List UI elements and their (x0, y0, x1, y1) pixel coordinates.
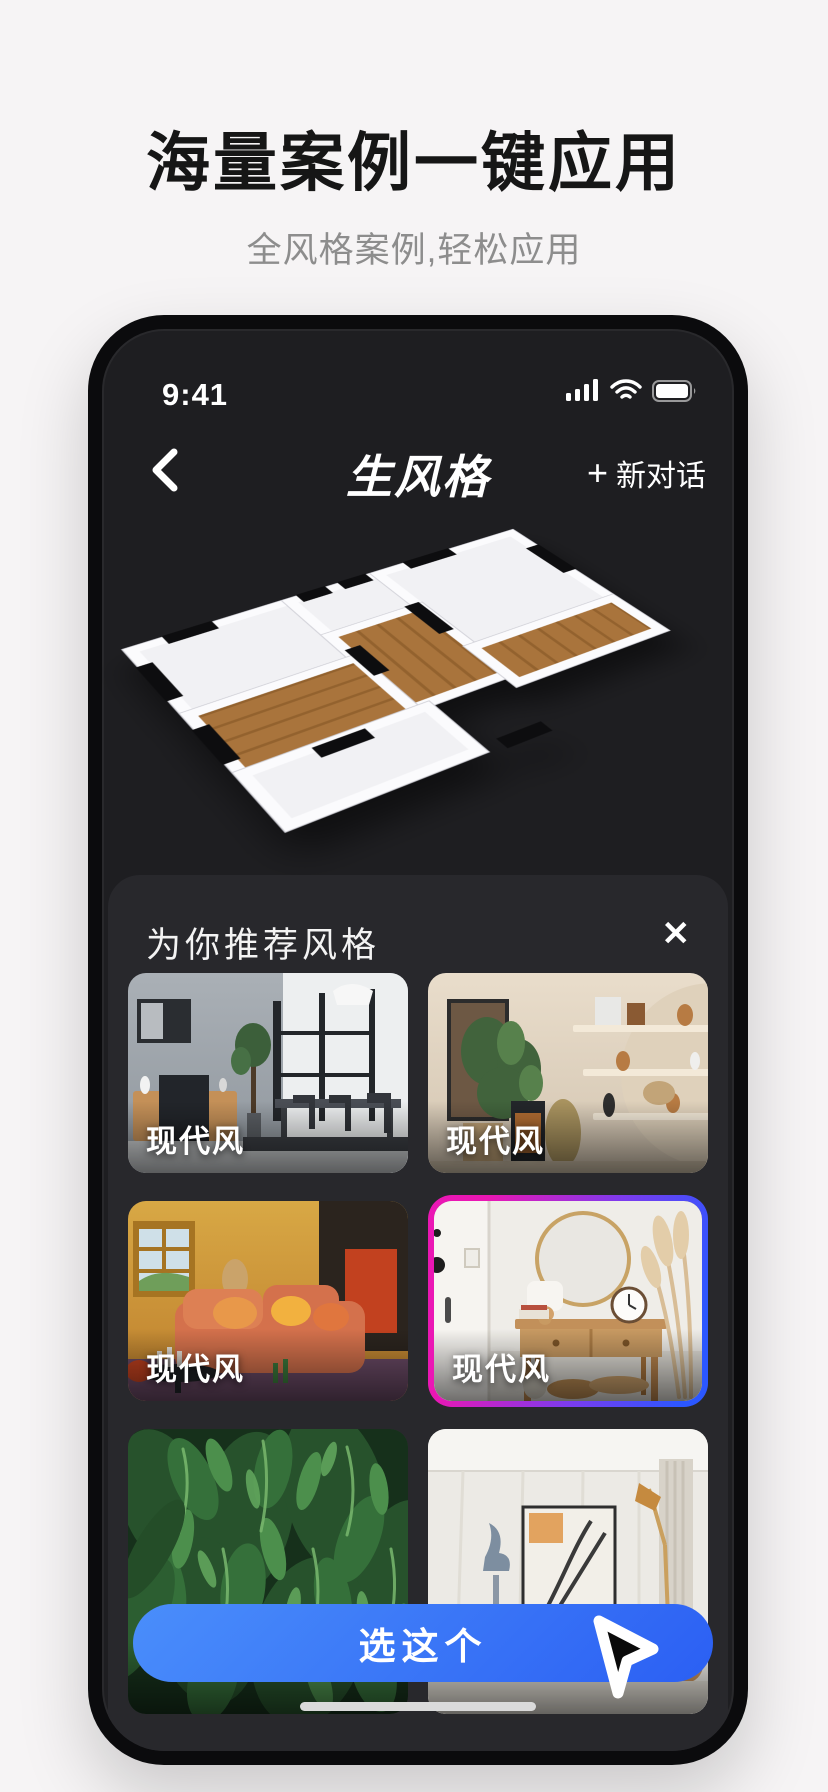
page-subtitle: 全风格案例,轻松应用 (0, 222, 828, 273)
style-card-dining-gray[interactable]: 现代风 (128, 973, 408, 1173)
sheet-title: 为你推荐风格 (146, 926, 380, 965)
signal-icon (566, 379, 600, 403)
floorplan-model (123, 529, 718, 831)
new-chat-label: 新对话 (616, 451, 706, 495)
style-card-selected[interactable]: 现代风 (428, 1195, 708, 1407)
plus-icon: + (587, 458, 608, 488)
style-grid: 现代风 (128, 973, 708, 1714)
style-card-shelves-beige[interactable]: 现代风 (428, 973, 708, 1173)
choose-button[interactable]: 选这个 (133, 1604, 713, 1682)
floorplan-3d (102, 497, 734, 857)
close-icon: ✕ (662, 915, 691, 953)
close-button[interactable]: ✕ (658, 913, 695, 955)
battery-icon (652, 379, 698, 403)
card-label: 现代风 (452, 1344, 551, 1389)
card-label: 现代风 (446, 1116, 545, 1161)
choose-button-label: 选这个 (359, 1626, 488, 1667)
sheet-header: 为你推荐风格 ✕ (128, 875, 708, 971)
phone-mockup: 9:41 (88, 315, 748, 1765)
phone-screen: 9:41 (102, 329, 734, 1751)
status-time: 9:41 (162, 377, 228, 413)
card-label: 现代风 (146, 1344, 245, 1389)
status-icons (566, 379, 698, 403)
style-card-sofa-orange[interactable]: 现代风 (128, 1201, 408, 1401)
status-bar: 9:41 (154, 377, 700, 413)
wifi-icon (610, 379, 642, 403)
home-indicator[interactable] (300, 1702, 536, 1711)
card-label: 现代风 (146, 1116, 245, 1161)
new-chat-button[interactable]: + 新对话 (587, 451, 706, 495)
style-card-console-white: 现代风 (434, 1201, 702, 1401)
page-title: 海量案例一键应用 (0, 112, 828, 204)
promo-page: 海量案例一键应用 全风格案例,轻松应用 9:41 (0, 0, 828, 1792)
